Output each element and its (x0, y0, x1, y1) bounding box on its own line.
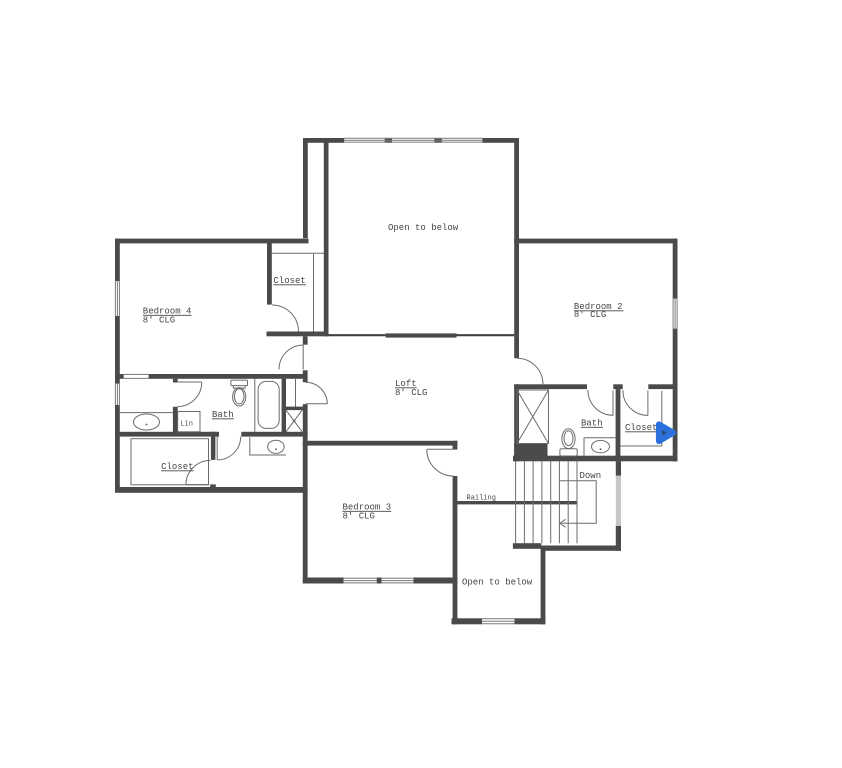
svg-text:Open to below: Open to below (462, 578, 533, 588)
svg-text:Railing: Railing (467, 495, 496, 503)
svg-text:8' CLG: 8' CLG (574, 310, 606, 320)
svg-text:Lin: Lin (180, 421, 193, 429)
svg-text:8' CLG: 8' CLG (143, 316, 175, 326)
svg-text:Open to below: Open to below (388, 223, 459, 233)
svg-text:8' CLG: 8' CLG (343, 512, 375, 522)
svg-text:8' CLG: 8' CLG (395, 388, 427, 398)
svg-text:Down: Down (580, 471, 602, 481)
